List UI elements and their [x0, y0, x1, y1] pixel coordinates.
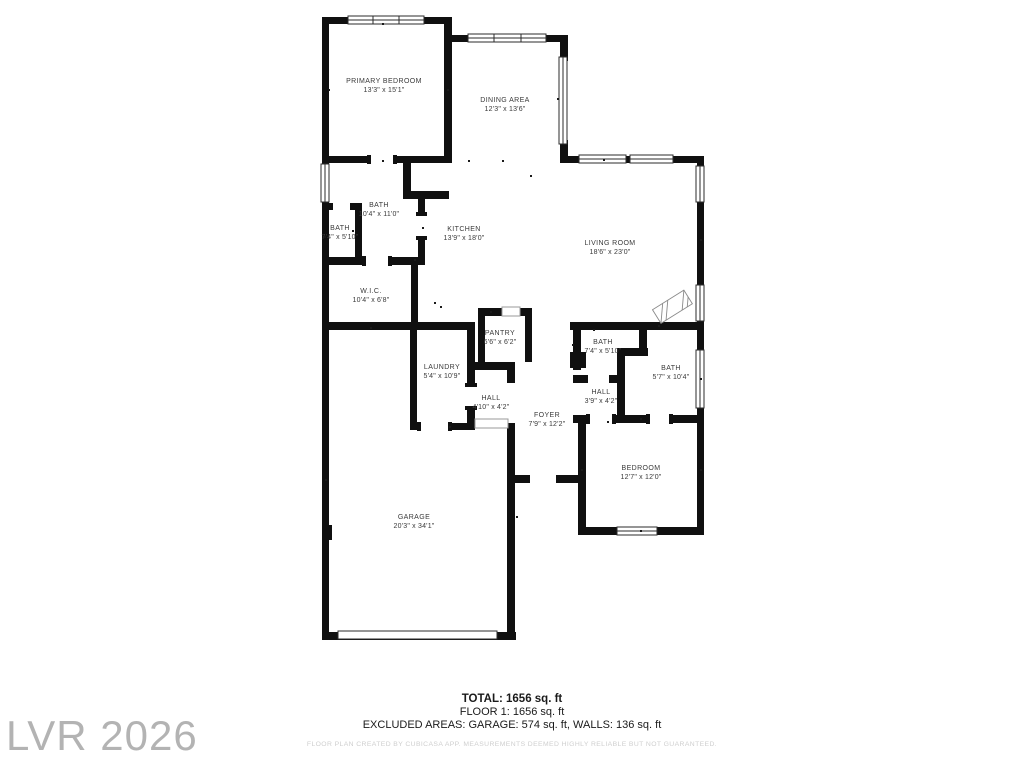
room-label-laundry: LAUNDRY 5'4" x 10'9"	[424, 364, 461, 381]
room-label-bath-right: BATH 5'7" x 10'4"	[653, 365, 690, 382]
floor-plan-drawing	[0, 0, 1024, 768]
room-label-garage: GARAGE 20'3" x 34'1"	[394, 514, 435, 531]
room-label-wic: W.I.C. 10'4" x 6'8"	[353, 288, 390, 305]
room-label-bath-main: BATH 10'4" x 11'0"	[359, 202, 399, 219]
room-label-foyer: FOYER 7'9" x 12'2"	[529, 412, 566, 429]
room-label-pantry: PANTRY 6'6" x 6'2"	[484, 330, 517, 347]
room-label-living-room: LIVING ROOM 18'6" x 23'0"	[584, 240, 635, 257]
room-label-hall-right: HALL 3'9" x 4'2"	[585, 389, 618, 406]
room-label-hall-left: HALL 4'10" x 4'2"	[473, 395, 510, 412]
room-label-dining-area: DINING AREA 12'3" x 13'6"	[480, 97, 530, 114]
total-area: TOTAL: 1656 sq. ft	[0, 692, 1024, 706]
room-label-kitchen: KITCHEN 13'9" x 18'0"	[444, 226, 485, 243]
room-label-bedroom: BEDROOM 12'7" x 12'0"	[621, 465, 662, 482]
watermark: LVR 2026	[6, 712, 198, 760]
floor-plan-page: PRIMARY BEDROOM 13'3" x 15'1" DINING ARE…	[0, 0, 1024, 768]
room-label-primary-bedroom: PRIMARY BEDROOM 13'3" x 15'1"	[346, 78, 422, 95]
room-label-bath-small: BATH 7'4" x 5'10"	[322, 225, 359, 242]
room-label-bath-right-small: BATH 7'4" x 5'10"	[585, 339, 622, 356]
garage-door	[338, 631, 497, 639]
fireplace-icon	[652, 290, 692, 323]
